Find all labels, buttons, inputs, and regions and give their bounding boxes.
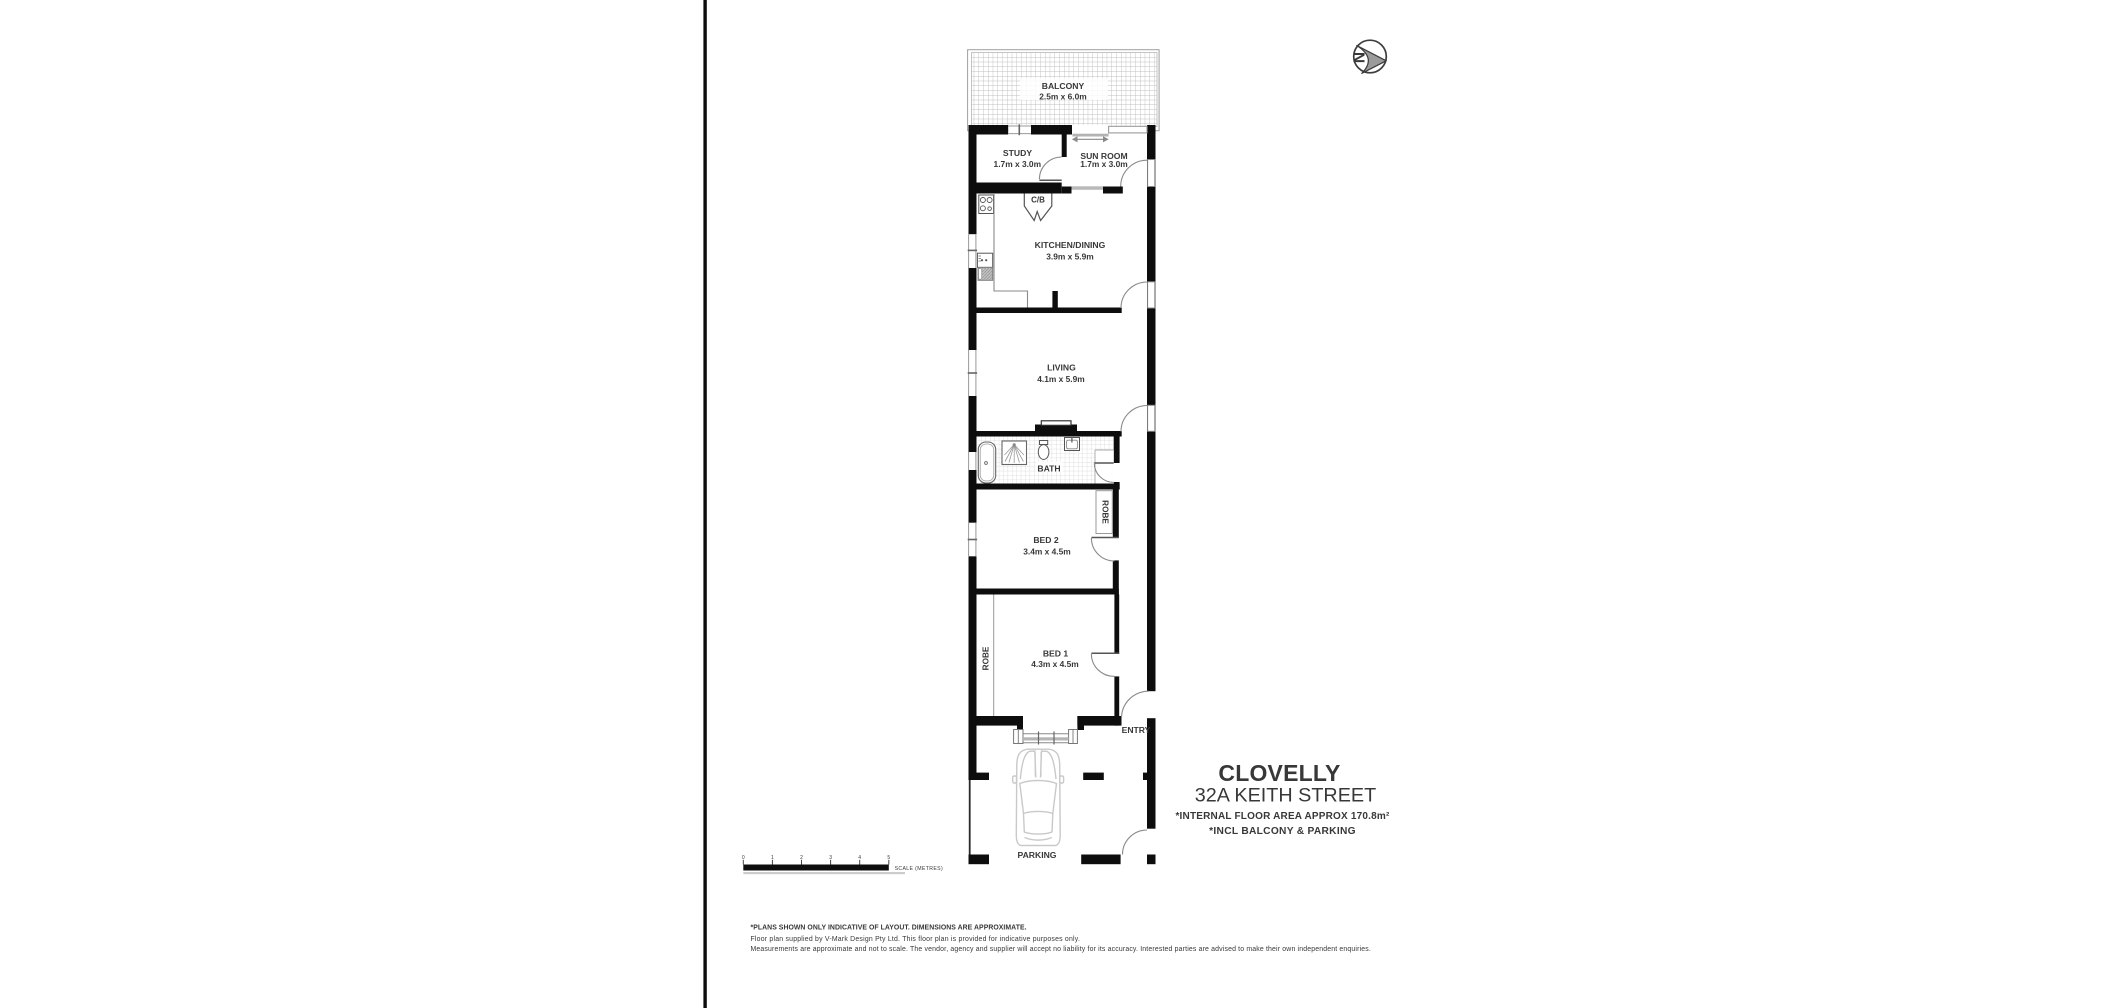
svg-text:1.7m x 3.0m: 1.7m x 3.0m: [994, 159, 1042, 169]
svg-text:PARKING: PARKING: [1018, 850, 1057, 860]
svg-text:4.1m x 5.9m: 4.1m x 5.9m: [1037, 374, 1085, 384]
svg-text:2.5m x 6.0m: 2.5m x 6.0m: [1039, 91, 1087, 101]
svg-text:LIVING: LIVING: [1047, 363, 1076, 373]
svg-text:*INCL BALCONY & PARKING: *INCL BALCONY & PARKING: [1209, 826, 1356, 837]
svg-text:*INTERNAL FLOOR AREA APPROX 17: *INTERNAL FLOOR AREA APPROX 170.8m²: [1175, 811, 1390, 822]
svg-text:1.7m x 3.0m: 1.7m x 3.0m: [1080, 159, 1128, 169]
svg-text:C/B: C/B: [1031, 196, 1045, 205]
svg-text:SCALE (METRES): SCALE (METRES): [895, 866, 943, 872]
svg-text:4.3m x 4.5m: 4.3m x 4.5m: [1031, 659, 1079, 669]
svg-text:Floor plan supplied by V-Mark: Floor plan supplied by V-Mark Design Pty…: [751, 936, 1081, 943]
svg-text:ROBE: ROBE: [981, 646, 990, 670]
svg-text:CLOVELLY: CLOVELLY: [1218, 760, 1340, 786]
svg-text:3.4m x 4.5m: 3.4m x 4.5m: [1023, 546, 1071, 556]
svg-text:BALCONY: BALCONY: [1042, 81, 1085, 91]
svg-text:STUDY: STUDY: [1003, 148, 1032, 158]
svg-text:32A KEITH STREET: 32A KEITH STREET: [1195, 785, 1376, 807]
svg-text:BED 1: BED 1: [1043, 649, 1069, 659]
svg-text:3.9m x 5.9m: 3.9m x 5.9m: [1046, 252, 1094, 262]
svg-text:N: N: [1352, 52, 1369, 63]
svg-text:Measurements are approximate a: Measurements are approximate and not to …: [751, 946, 1372, 953]
svg-text:KITCHEN/DINING: KITCHEN/DINING: [1035, 240, 1106, 250]
svg-text:ROBE: ROBE: [1100, 500, 1109, 524]
svg-text:ENTRY: ENTRY: [1122, 725, 1151, 735]
svg-text:BATH: BATH: [1037, 464, 1060, 474]
svg-text:BED 2: BED 2: [1033, 535, 1059, 545]
svg-text:*PLANS SHOWN ONLY INDICATIVE O: *PLANS SHOWN ONLY INDICATIVE OF LAYOUT. …: [751, 924, 1027, 931]
